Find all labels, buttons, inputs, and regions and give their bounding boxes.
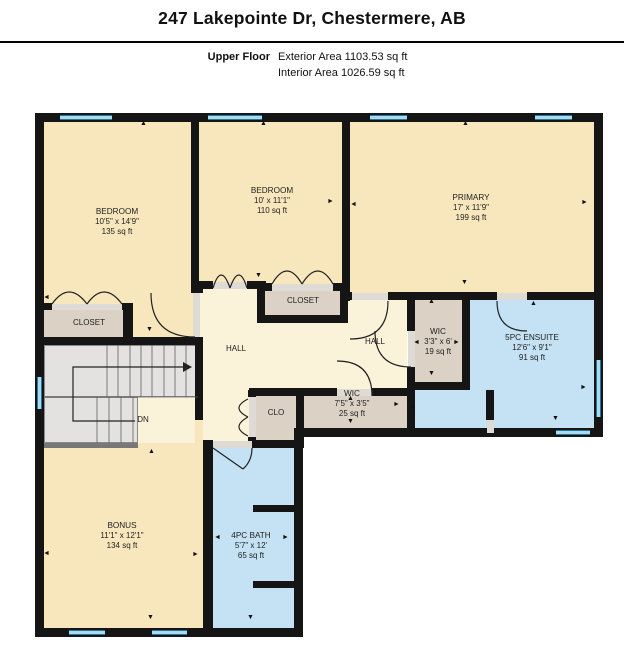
primary-name: PRIMARY [426, 193, 516, 203]
wall-bed2-bottom-a [199, 281, 213, 289]
clo-name: CLO [256, 408, 296, 418]
door-gap-bedroom2 [213, 282, 247, 289]
window-bonus-1 [69, 630, 105, 635]
window-ensuite-bottom [556, 430, 590, 435]
door-gap-bath [213, 441, 252, 448]
bedroom2-name: BEDROOM [227, 186, 317, 196]
label-ensuite: 5PC ENSUITE 12'6" x 9'1" 91 sq ft [487, 333, 577, 363]
arrow-up-icon: ▲ [140, 120, 147, 127]
wall-primary-bottom-a [342, 292, 352, 300]
label-clo: CLO [256, 408, 296, 418]
arrow-down-icon: ▼ [247, 614, 254, 621]
wall-stair-top [35, 337, 203, 345]
arrow-down-icon: ▼ [347, 418, 354, 425]
floorplan-page: 247 Lakepointe Dr, Chestermere, AB Upper… [0, 0, 624, 659]
arrow-up-icon: ▲ [428, 298, 435, 305]
arrow-up-icon: ▲ [462, 120, 469, 127]
wall-outer-left [35, 113, 44, 637]
stairs-upper-flight [44, 345, 198, 397]
room-hall2b-floor [257, 323, 348, 390]
arrow-down-icon: ▼ [461, 279, 468, 286]
arrow-down-icon: ▼ [428, 370, 435, 377]
arrow-up-icon: ▲ [530, 300, 537, 307]
ensuite-dim: 12'6" x 9'1" [487, 343, 577, 353]
arrow-left-icon: ◄ [409, 404, 416, 411]
label-bedroom1: BEDROOM 10'5" x 14'9" 135 sq ft [72, 207, 162, 237]
window-top-1 [60, 115, 112, 120]
arrow-left-icon: ◄ [350, 201, 357, 208]
bonus-dim: 11'1" x 12'1" [77, 531, 167, 541]
label-stairs-dn: DN [128, 415, 158, 425]
page-title: 247 Lakepointe Dr, Chestermere, AB [0, 8, 624, 29]
wall-outer-top [35, 113, 603, 122]
closet1-name: CLOSET [54, 318, 124, 328]
wall-closet2-bottom [257, 315, 348, 323]
arrow-right-icon: ► [393, 401, 400, 408]
stairs-dn: DN [128, 415, 158, 425]
arrow-right-icon: ► [282, 534, 289, 541]
arrow-left-icon: ◄ [43, 550, 50, 557]
window-top-3 [370, 115, 407, 120]
interior-area: Interior Area 1026.59 sq ft [278, 67, 405, 79]
arrow-left-icon: ◄ [43, 294, 50, 301]
door-gap-bedroom1 [193, 293, 200, 337]
door-gap-closet2 [272, 284, 333, 291]
window-left-stair [37, 377, 42, 409]
wall-primary-bottom-c [527, 292, 603, 300]
arrow-up-icon: ▲ [260, 120, 267, 127]
header-divider [0, 41, 624, 43]
door-gap-ensuite [497, 293, 527, 300]
wall-clo-wic2 [296, 388, 304, 448]
label-hall2: HALL [350, 337, 400, 347]
wall-tub-stub-lower [253, 581, 294, 588]
hall2-name: HALL [350, 337, 400, 347]
arrow-left-icon: ◄ [214, 534, 221, 541]
bedroom1-name: BEDROOM [72, 207, 162, 217]
label-bedroom2: BEDROOM 10' x 11'1" 110 sq ft [227, 186, 317, 216]
bedroom2-dim: 10' x 11'1" [227, 196, 317, 206]
door-gap-closet1 [52, 304, 122, 310]
wall-primary-bottom-b [388, 292, 497, 300]
primary-dim: 17' x 11'9" [426, 203, 516, 213]
arrow-right-icon: ► [580, 384, 587, 391]
label-closet2: CLOSET [268, 296, 338, 306]
primary-area: 199 sq ft [426, 213, 516, 223]
door-gap-clo [249, 397, 256, 437]
ensuite-area: 91 sq ft [487, 353, 577, 363]
window-ensuite-right [596, 360, 601, 417]
ensuite-name: 5PC ENSUITE [487, 333, 577, 343]
wall-closet1-top-a [35, 303, 52, 310]
bedroom1-dim: 10'5" x 14'9" [72, 217, 162, 227]
wall-wc-ensuite [486, 390, 494, 420]
wall-wic1-left-a [407, 293, 415, 331]
arrow-down-icon: ▼ [147, 614, 154, 621]
arrow-up-icon: ▲ [148, 448, 155, 455]
window-top-2 [208, 115, 262, 120]
bonus-area: 134 sq ft [77, 541, 167, 551]
wall-closet2-top-a [265, 283, 272, 291]
arrow-right-icon: ► [581, 199, 588, 206]
label-bonus: BONUS 11'1" x 12'1" 134 sq ft [77, 521, 167, 551]
wall-lower-right-vert [294, 428, 303, 637]
arrow-down-icon: ▼ [552, 415, 559, 422]
window-top-4 [535, 115, 572, 120]
room-ensuite-wc-floor [415, 390, 486, 428]
arrow-left-icon: ◄ [413, 339, 420, 346]
door-gap-wc [487, 420, 494, 433]
window-bonus-2 [152, 630, 187, 635]
arrow-right-icon: ► [327, 198, 334, 205]
wall-stair-hall [195, 337, 203, 420]
hall1-name: HALL [211, 344, 261, 354]
door-gap-primary [352, 293, 388, 300]
wall-closet2-top-b [333, 283, 348, 291]
bath-area: 65 sq ft [211, 551, 291, 561]
wall-bed1-bed2 [191, 113, 199, 293]
wall-wc-left [407, 390, 415, 437]
arrow-down-icon: ▼ [146, 326, 153, 333]
wall-bed2-primary [342, 113, 350, 301]
bath-name: 4PC BATH [211, 531, 291, 541]
stairs-lower-flight [44, 397, 138, 443]
wic1-name: WIC [408, 327, 468, 337]
arrow-right-icon: ► [453, 339, 460, 346]
stairs-bottom-edge [44, 443, 138, 448]
arrow-right-icon: ► [192, 551, 199, 558]
wall-tub-stub-upper [253, 505, 294, 512]
arrow-down-icon: ▼ [255, 272, 262, 279]
bedroom1-area: 135 sq ft [72, 227, 162, 237]
wall-bath-top-b [252, 440, 303, 448]
label-bath: 4PC BATH 5'7" x 12' 65 sq ft [211, 531, 291, 561]
label-hall1: HALL [211, 344, 261, 354]
floor-label: Upper Floor [150, 51, 270, 63]
label-wic2: WIC 7'5" x 3'5" 25 sq ft [307, 389, 397, 419]
room-clo-floor [256, 396, 296, 440]
wall-wic1-bottom [407, 382, 470, 390]
exterior-area: Exterior Area 1103.53 sq ft [278, 51, 407, 63]
bonus-name: BONUS [77, 521, 167, 531]
label-primary: PRIMARY 17' x 11'9" 199 sq ft [426, 193, 516, 223]
closet2-name: CLOSET [268, 296, 338, 306]
bath-dim: 5'7" x 12' [211, 541, 291, 551]
bedroom2-area: 110 sq ft [227, 206, 317, 216]
arrow-left-icon: ◄ [296, 401, 303, 408]
label-closet1: CLOSET [54, 318, 124, 328]
wic1-area: 19 sq ft [408, 347, 468, 357]
arrow-up-icon: ▲ [347, 395, 354, 402]
